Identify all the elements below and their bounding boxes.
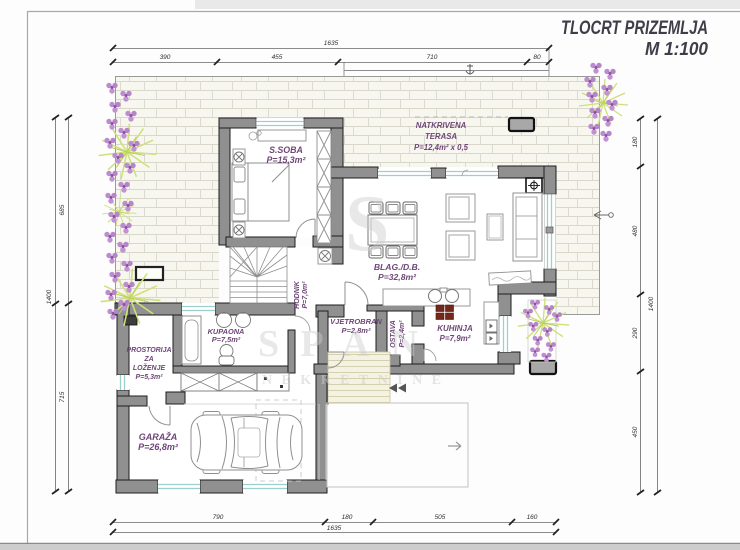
svg-text:M 1:100: M 1:100 [645,39,708,59]
svg-text:KUHINJA: KUHINJA [437,324,473,333]
svg-text:290: 290 [632,327,639,339]
svg-text:715: 715 [59,391,66,402]
svg-text:P=7,5m²: P=7,5m² [212,335,241,344]
svg-text:390: 390 [160,54,171,61]
svg-text:TLOCRT PRIZEMLJA: TLOCRT PRIZEMLJA [561,18,708,39]
svg-text:180: 180 [342,514,353,521]
svg-text:P=7,0m²: P=7,0m² [302,281,309,309]
svg-text:710: 710 [427,54,438,61]
svg-text:HODNIK: HODNIK [294,280,301,309]
svg-text:790: 790 [213,514,224,521]
svg-text:PROSTORIJA: PROSTORIJA [127,347,172,354]
svg-text:TERASA: TERASA [425,132,457,141]
svg-text:LOŽENJE: LOŽENJE [133,363,166,372]
svg-text:1635: 1635 [327,525,342,532]
svg-text:505: 505 [435,514,446,521]
svg-text:P=12,4m² x 0,5: P=12,4m² x 0,5 [414,143,469,152]
svg-text:GARAŽA: GARAŽA [139,431,178,442]
svg-text:S.SOBA: S.SOBA [269,145,303,155]
svg-text:P=15,3m²: P=15,3m² [267,155,307,165]
svg-text:P=26,8m²: P=26,8m² [138,442,179,452]
svg-text:1400: 1400 [46,289,53,304]
svg-text:180: 180 [632,136,639,147]
svg-text:NATKRIVENA: NATKRIVENA [416,121,467,130]
svg-text:685: 685 [59,204,66,215]
svg-text:S: S [345,180,390,268]
svg-text:1635: 1635 [324,40,339,47]
svg-text:450: 450 [632,426,639,437]
svg-text:1400: 1400 [648,296,655,311]
svg-text:P=7,9m²: P=7,9m² [440,334,471,343]
svg-text:SPAN: SPAN [258,323,430,365]
svg-text:80: 80 [533,54,541,61]
svg-text:160: 160 [527,514,538,521]
svg-text:480: 480 [632,225,639,236]
svg-text:ZA: ZA [143,356,153,363]
svg-text:P=5,3m²: P=5,3m² [135,374,163,381]
svg-text:NEKRETNINE: NEKRETNINE [262,373,446,388]
svg-text:P=32,8m²: P=32,8m² [378,272,417,282]
svg-text:455: 455 [272,54,283,61]
